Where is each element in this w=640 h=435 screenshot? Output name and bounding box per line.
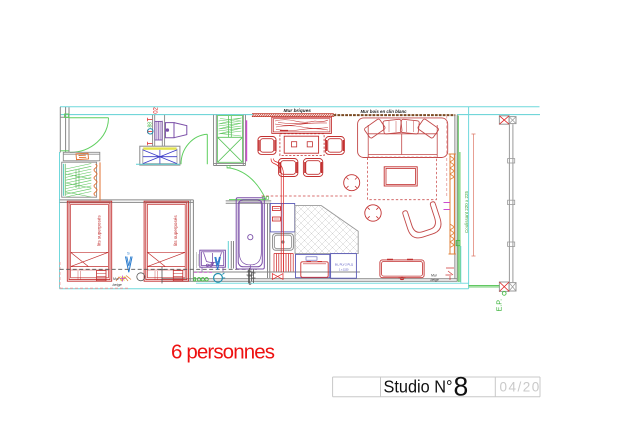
svg-text:Mur: Mur [113, 277, 120, 281]
svg-text:8: 8 [454, 372, 469, 402]
svg-text:Coulissant 220 x 225: Coulissant 220 x 225 [464, 190, 469, 233]
svg-text:04/20: 04/20 [500, 379, 541, 394]
svg-text:88: 88 [147, 122, 153, 128]
svg-text:6 personnes: 6 personnes [171, 341, 275, 364]
svg-text:S: S [127, 251, 130, 256]
svg-text:E.P.: E.P. [495, 299, 504, 312]
svg-text:Mur bois en clin blanc: Mur bois en clin blanc [361, 109, 408, 114]
svg-text:Studio N°: Studio N° [384, 377, 453, 397]
svg-text:beige: beige [431, 278, 439, 282]
svg-text:beige: beige [113, 283, 122, 287]
svg-text:lits superposés: lits superposés [173, 215, 178, 246]
svg-text:Mur: Mur [431, 273, 438, 277]
svg-text:B.L PLV 2 PLQ: B.L PLV 2 PLQ [335, 263, 353, 267]
svg-text:Mur briques: Mur briques [284, 108, 312, 114]
svg-text:lits superposés: lits superposés [96, 215, 101, 246]
svg-text:02: 02 [153, 106, 159, 113]
svg-text:1 x 1150: 1 x 1150 [339, 269, 349, 272]
